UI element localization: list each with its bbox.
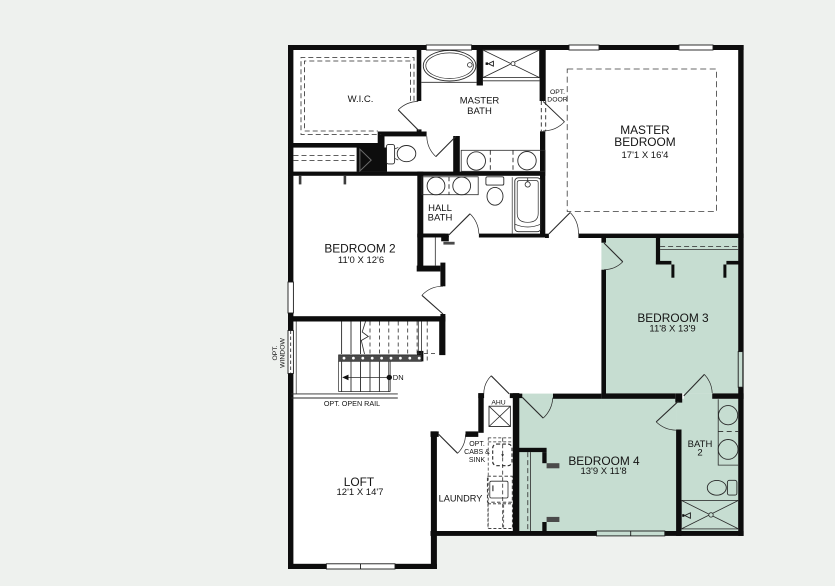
svg-text:SINK: SINK <box>469 457 486 464</box>
svg-text:OPT.: OPT. <box>550 89 565 96</box>
svg-text:12'1 X 14'7: 12'1 X 14'7 <box>337 487 384 498</box>
svg-text:CABS &: CABS & <box>464 449 490 456</box>
svg-text:2: 2 <box>697 448 702 459</box>
svg-text:13'9 X 11'8: 13'9 X 11'8 <box>580 466 626 477</box>
svg-text:OPT. OPEN RAIL: OPT. OPEN RAIL <box>324 399 380 408</box>
svg-text:LAUNDRY: LAUNDRY <box>439 494 483 504</box>
svg-text:DOOR: DOOR <box>547 97 567 104</box>
svg-text:BEDROOM: BEDROOM <box>614 135 675 149</box>
svg-text:11'0 X 12'6: 11'0 X 12'6 <box>338 255 384 266</box>
svg-text:MASTER: MASTER <box>460 96 500 107</box>
svg-text:DN: DN <box>393 373 404 382</box>
svg-text:BATH: BATH <box>467 106 492 117</box>
svg-text:BEDROOM 2: BEDROOM 2 <box>324 242 396 256</box>
svg-text:W.I.C.: W.I.C. <box>348 94 374 105</box>
svg-text:11'8 X 13'9: 11'8 X 13'9 <box>649 324 695 335</box>
svg-text:AHU: AHU <box>491 400 505 407</box>
svg-text:BATH: BATH <box>428 212 453 223</box>
svg-text:WINDOW: WINDOW <box>279 338 286 368</box>
svg-text:17'1 X 16'4: 17'1 X 16'4 <box>622 150 669 161</box>
svg-text:OPT.: OPT. <box>272 345 279 360</box>
svg-text:OPT.: OPT. <box>469 441 485 448</box>
